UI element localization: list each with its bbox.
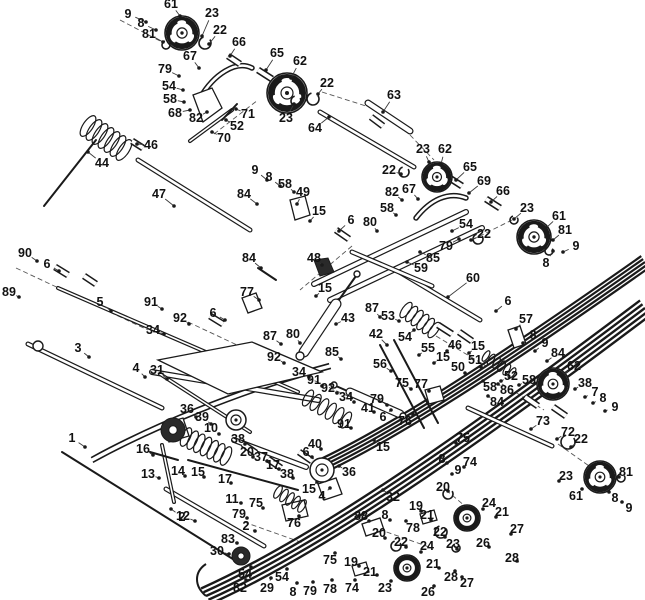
part-label-6: 6 bbox=[505, 294, 512, 308]
part-label-23: 23 bbox=[520, 201, 534, 215]
part-label-69: 69 bbox=[477, 174, 491, 188]
part-label-92: 92 bbox=[267, 350, 281, 364]
leader-dot bbox=[439, 162, 443, 166]
leader-dot bbox=[228, 54, 232, 58]
leader-dot bbox=[210, 130, 214, 134]
leader-dot bbox=[295, 202, 299, 206]
leader-dot bbox=[334, 322, 338, 326]
part-label-91: 91 bbox=[337, 417, 351, 431]
leader-dot bbox=[327, 115, 331, 119]
part-label-57: 57 bbox=[519, 312, 533, 326]
part-label-72: 72 bbox=[561, 425, 575, 439]
leader-dot bbox=[375, 229, 379, 233]
part-label-81: 81 bbox=[558, 223, 572, 237]
part-label-15: 15 bbox=[191, 465, 205, 479]
part-label-43: 43 bbox=[341, 311, 355, 325]
part-label-6: 6 bbox=[348, 213, 355, 227]
leader-dot bbox=[224, 118, 228, 122]
leader-dot bbox=[545, 359, 549, 363]
leader-dot bbox=[573, 387, 577, 391]
leader-dot bbox=[551, 238, 555, 242]
part-label-8: 8 bbox=[290, 585, 297, 599]
part-label-26: 26 bbox=[421, 585, 435, 599]
leader-dot bbox=[57, 269, 61, 273]
part-label-9: 9 bbox=[125, 7, 132, 21]
leader-dot bbox=[83, 445, 87, 449]
leader-dot bbox=[292, 102, 296, 106]
part-label-8: 8 bbox=[612, 491, 619, 505]
part-label-19: 19 bbox=[344, 555, 358, 569]
leader-dot bbox=[169, 507, 173, 511]
part-label-23: 23 bbox=[416, 142, 430, 156]
part-label-1: 1 bbox=[69, 431, 76, 445]
part-label-44: 44 bbox=[95, 156, 109, 170]
leader-dot bbox=[416, 197, 420, 201]
leader-dot bbox=[555, 437, 559, 441]
part-label-5: 5 bbox=[97, 295, 104, 309]
part-label-29: 29 bbox=[260, 581, 274, 595]
part-label-22: 22 bbox=[574, 432, 588, 446]
part-label-22: 22 bbox=[320, 76, 334, 90]
part-label-75: 75 bbox=[395, 376, 409, 390]
leader-dot bbox=[544, 226, 548, 230]
part-label-9: 9 bbox=[542, 336, 549, 350]
leader-dot bbox=[160, 307, 164, 311]
leader-dot bbox=[182, 100, 186, 104]
part-label-23: 23 bbox=[446, 537, 460, 551]
wheel-axle bbox=[598, 475, 601, 478]
leader-dot bbox=[389, 408, 393, 412]
part-label-84: 84 bbox=[237, 187, 251, 201]
part-label-92: 92 bbox=[173, 311, 187, 325]
eyelet bbox=[33, 341, 43, 351]
leader-dot bbox=[394, 213, 398, 217]
leader-dot bbox=[389, 369, 393, 373]
leader-dot bbox=[310, 455, 314, 459]
wheel-axle bbox=[320, 468, 323, 471]
leader-dot bbox=[388, 518, 392, 522]
leader-dot bbox=[279, 342, 283, 346]
leader-dot bbox=[397, 319, 401, 323]
part-label-53: 53 bbox=[381, 309, 395, 323]
part-label-77: 77 bbox=[414, 377, 428, 391]
leader-dot bbox=[178, 14, 182, 18]
leader-dot bbox=[282, 361, 286, 365]
leader-dot bbox=[109, 309, 113, 313]
part-label-8: 8 bbox=[439, 452, 446, 466]
wheel-axle bbox=[532, 235, 535, 238]
part-label-22: 22 bbox=[213, 23, 227, 37]
leader-dot bbox=[512, 217, 516, 221]
leader-dot bbox=[607, 490, 611, 494]
leader-dot bbox=[603, 409, 607, 413]
leader-dot bbox=[551, 249, 555, 253]
leader-dot bbox=[289, 76, 293, 80]
part-label-13: 13 bbox=[141, 467, 155, 481]
leader-dot bbox=[517, 383, 521, 387]
part-label-21: 21 bbox=[495, 505, 509, 519]
part-label-79: 79 bbox=[439, 239, 453, 253]
wheel-axle bbox=[180, 31, 183, 34]
wheel-axle bbox=[551, 382, 554, 385]
leader-dot bbox=[165, 377, 169, 381]
part-label-8: 8 bbox=[600, 391, 607, 405]
leader-dot bbox=[583, 395, 587, 399]
part-label-27: 27 bbox=[510, 522, 524, 536]
part-label-32: 32 bbox=[386, 490, 400, 504]
leader-dot bbox=[339, 357, 343, 361]
leader-dot bbox=[529, 427, 533, 431]
part-label-9: 9 bbox=[252, 163, 259, 177]
leader-dot bbox=[337, 229, 341, 233]
part-label-54: 54 bbox=[275, 570, 289, 584]
part-label-80: 80 bbox=[363, 215, 377, 229]
part-label-2: 2 bbox=[243, 519, 250, 533]
part-label-15: 15 bbox=[318, 281, 332, 295]
part-label-16: 16 bbox=[136, 442, 150, 456]
leader-dot bbox=[445, 461, 449, 465]
part-label-9: 9 bbox=[612, 400, 619, 414]
part-label-84: 84 bbox=[242, 251, 256, 265]
leader-dot bbox=[257, 298, 261, 302]
part-label-26: 26 bbox=[476, 536, 490, 550]
leader-dot bbox=[207, 42, 211, 46]
part-label-46: 46 bbox=[448, 338, 462, 352]
leader-dot bbox=[400, 198, 404, 202]
part-label-38: 38 bbox=[280, 467, 294, 481]
part-label-24: 24 bbox=[420, 539, 434, 553]
leader-dot bbox=[494, 309, 498, 313]
leader-dot bbox=[591, 401, 595, 405]
part-label-81: 81 bbox=[142, 27, 156, 41]
eyelet bbox=[296, 352, 304, 360]
leader-dot bbox=[399, 172, 403, 176]
leader-dot bbox=[35, 259, 39, 263]
part-label-28: 28 bbox=[505, 551, 519, 565]
leader-dot bbox=[381, 110, 385, 114]
part-label-92: 92 bbox=[321, 381, 335, 395]
part-label-4: 4 bbox=[319, 489, 326, 503]
leader-dot bbox=[418, 250, 422, 254]
leader-dot bbox=[177, 74, 181, 78]
part-label-20: 20 bbox=[436, 480, 450, 494]
leader-dot bbox=[172, 204, 176, 208]
part-label-36: 36 bbox=[180, 402, 194, 416]
part-label-66: 66 bbox=[232, 35, 246, 49]
part-label-54: 54 bbox=[238, 567, 252, 581]
leader-dot bbox=[337, 464, 341, 468]
part-label-3: 3 bbox=[75, 341, 82, 355]
leader-dot bbox=[569, 445, 573, 449]
part-label-78: 78 bbox=[323, 582, 337, 596]
part-label-79: 79 bbox=[303, 584, 317, 598]
leader-dot bbox=[457, 237, 461, 241]
part-label-65: 65 bbox=[463, 160, 477, 174]
wheel-axle bbox=[435, 175, 438, 178]
part-label-60: 60 bbox=[466, 271, 480, 285]
part-label-73: 73 bbox=[536, 414, 550, 428]
leader-dot bbox=[446, 295, 450, 299]
part-label-59: 59 bbox=[414, 261, 428, 275]
part-label-38: 38 bbox=[231, 432, 245, 446]
leader-dot bbox=[205, 110, 209, 114]
wheel-axle bbox=[405, 566, 408, 569]
part-label-50: 50 bbox=[451, 360, 465, 374]
part-label-15: 15 bbox=[376, 440, 390, 454]
leader-dot bbox=[200, 34, 204, 38]
leader-dot bbox=[135, 142, 139, 146]
part-label-58: 58 bbox=[278, 177, 292, 191]
leader-dot bbox=[259, 266, 263, 270]
part-label-75: 75 bbox=[456, 431, 470, 445]
part-label-82: 82 bbox=[385, 185, 399, 199]
part-label-54: 54 bbox=[459, 217, 473, 231]
leader-dot bbox=[143, 375, 147, 379]
part-label-54: 54 bbox=[398, 330, 412, 344]
leader-dot bbox=[227, 552, 231, 556]
parts-diagram-svg: 9618812322666765627954586882715270234644… bbox=[0, 0, 645, 600]
part-label-21: 21 bbox=[426, 557, 440, 571]
part-label-91: 91 bbox=[144, 295, 158, 309]
leader-dot bbox=[193, 519, 197, 523]
part-label-75: 75 bbox=[249, 496, 263, 510]
part-label-84: 84 bbox=[551, 346, 565, 360]
part-label-20: 20 bbox=[372, 526, 386, 540]
leader-dot bbox=[409, 387, 413, 391]
part-label-21: 21 bbox=[363, 565, 377, 579]
part-label-65: 65 bbox=[270, 46, 284, 60]
part-label-6: 6 bbox=[210, 306, 217, 320]
eyelet bbox=[354, 271, 360, 277]
part-label-61: 61 bbox=[164, 0, 178, 11]
part-label-34: 34 bbox=[292, 365, 306, 379]
part-label-49: 49 bbox=[296, 185, 310, 199]
part-label-67: 67 bbox=[402, 182, 416, 196]
leader-dot bbox=[427, 160, 431, 164]
leader-dot bbox=[385, 343, 389, 347]
part-label-4: 4 bbox=[133, 361, 140, 375]
part-label-62: 62 bbox=[438, 142, 452, 156]
part-label-17: 17 bbox=[266, 458, 280, 472]
part-label-14: 14 bbox=[171, 464, 185, 478]
part-label-81: 81 bbox=[619, 465, 633, 479]
leader-dot bbox=[235, 541, 239, 545]
leader-dot bbox=[561, 373, 565, 377]
parts-diagram-page: 9618812322666765627954586882715270234644… bbox=[0, 0, 645, 600]
part-label-84: 84 bbox=[490, 395, 504, 409]
part-label-40: 40 bbox=[308, 437, 322, 451]
part-label-76: 76 bbox=[398, 414, 412, 428]
part-label-61: 61 bbox=[552, 209, 566, 223]
leader-dot bbox=[469, 238, 473, 242]
leader-dot bbox=[385, 403, 389, 407]
part-label-55: 55 bbox=[421, 341, 435, 355]
leader-dot bbox=[514, 327, 518, 331]
leader-dot bbox=[381, 488, 385, 492]
wheel-axle bbox=[285, 91, 289, 95]
part-label-8: 8 bbox=[543, 256, 550, 270]
leader-dot bbox=[87, 355, 91, 359]
leader-dot bbox=[151, 453, 155, 457]
part-label-88: 88 bbox=[354, 509, 368, 523]
leader-dot bbox=[467, 191, 471, 195]
part-label-51: 51 bbox=[468, 353, 482, 367]
part-label-17: 17 bbox=[218, 472, 232, 486]
part-label-82: 82 bbox=[233, 581, 247, 595]
part-label-20: 20 bbox=[240, 445, 254, 459]
part-label-2: 2 bbox=[179, 510, 186, 524]
part-label-22: 22 bbox=[433, 525, 447, 539]
part-label-79: 79 bbox=[158, 62, 172, 76]
wheel-axle bbox=[465, 516, 468, 519]
part-label-23: 23 bbox=[205, 6, 219, 20]
leader-dot bbox=[144, 20, 148, 24]
part-label-80: 80 bbox=[286, 327, 300, 341]
part-label-8: 8 bbox=[382, 508, 389, 522]
part-label-36: 36 bbox=[342, 465, 356, 479]
part-label-9: 9 bbox=[626, 501, 633, 515]
part-label-6: 6 bbox=[44, 257, 51, 271]
part-label-8: 8 bbox=[530, 328, 537, 342]
leader-dot bbox=[269, 576, 273, 580]
part-label-15: 15 bbox=[471, 339, 485, 353]
part-label-89: 89 bbox=[2, 285, 16, 299]
leader-dot bbox=[157, 476, 161, 480]
part-label-22: 22 bbox=[477, 227, 491, 241]
part-label-68: 68 bbox=[168, 106, 182, 120]
part-label-24: 24 bbox=[482, 496, 496, 510]
leader-dot bbox=[489, 200, 493, 204]
part-label-9: 9 bbox=[573, 239, 580, 253]
part-label-42: 42 bbox=[369, 327, 383, 341]
part-label-34: 34 bbox=[339, 390, 353, 404]
part-label-38: 38 bbox=[578, 376, 592, 390]
leader-dot bbox=[197, 66, 201, 70]
part-label-67: 67 bbox=[183, 49, 197, 63]
part-label-27: 27 bbox=[460, 576, 474, 590]
leader-dot bbox=[308, 219, 312, 223]
part-label-79: 79 bbox=[370, 392, 384, 406]
part-label-58: 58 bbox=[380, 201, 394, 215]
part-label-87: 87 bbox=[365, 301, 379, 315]
part-label-11: 11 bbox=[225, 492, 238, 506]
part-label-22: 22 bbox=[394, 535, 408, 549]
part-label-10: 10 bbox=[204, 421, 218, 435]
leader-dot bbox=[620, 500, 624, 504]
part-label-76: 76 bbox=[287, 516, 301, 530]
part-label-23: 23 bbox=[559, 469, 573, 483]
part-label-58: 58 bbox=[522, 373, 536, 387]
leader-dot bbox=[521, 341, 525, 345]
leader-dot bbox=[17, 295, 21, 299]
leader-dot bbox=[328, 486, 332, 490]
leader-dot bbox=[450, 229, 454, 233]
leader-dot bbox=[533, 349, 537, 353]
part-label-70: 70 bbox=[217, 131, 231, 145]
roller-hub bbox=[238, 553, 244, 559]
part-label-23: 23 bbox=[279, 111, 293, 125]
leader-dot bbox=[86, 150, 90, 154]
part-label-64: 64 bbox=[308, 121, 322, 135]
part-label-85: 85 bbox=[325, 345, 339, 359]
part-label-63: 63 bbox=[387, 88, 401, 102]
leader-dot bbox=[412, 328, 416, 332]
part-label-30: 30 bbox=[210, 544, 224, 558]
part-label-62: 62 bbox=[293, 54, 307, 68]
part-label-9: 9 bbox=[455, 463, 462, 477]
part-label-87: 87 bbox=[263, 329, 277, 343]
part-label-77: 77 bbox=[240, 285, 254, 299]
part-label-54: 54 bbox=[162, 79, 176, 93]
part-label-75: 75 bbox=[323, 553, 337, 567]
part-label-85: 85 bbox=[426, 251, 440, 265]
leader-dot bbox=[454, 178, 458, 182]
leader-dot bbox=[239, 501, 243, 505]
leader-dot bbox=[162, 332, 166, 336]
part-label-66: 66 bbox=[496, 184, 510, 198]
part-label-23: 23 bbox=[378, 581, 392, 595]
leader-dot bbox=[316, 92, 320, 96]
part-label-15: 15 bbox=[302, 482, 316, 496]
part-label-82: 82 bbox=[189, 111, 203, 125]
part-label-58: 58 bbox=[483, 380, 497, 394]
leader-dot bbox=[405, 260, 409, 264]
part-label-15: 15 bbox=[436, 350, 450, 364]
part-label-47: 47 bbox=[152, 187, 166, 201]
part-label-62: 62 bbox=[567, 359, 581, 373]
part-label-22: 22 bbox=[382, 163, 396, 177]
leader-dot bbox=[255, 202, 259, 206]
part-label-46: 46 bbox=[144, 138, 158, 152]
leader-dot bbox=[264, 68, 268, 72]
part-label-8: 8 bbox=[266, 170, 273, 184]
roller-hub bbox=[169, 426, 177, 434]
part-label-52: 52 bbox=[504, 369, 518, 383]
part-label-34: 34 bbox=[146, 323, 160, 337]
part-label-58: 58 bbox=[163, 92, 177, 106]
leader-dot bbox=[187, 322, 191, 326]
leader-dot bbox=[161, 40, 165, 44]
part-label-7: 7 bbox=[592, 385, 599, 399]
leader-dot bbox=[223, 318, 227, 322]
part-label-74: 74 bbox=[463, 455, 477, 469]
part-label-15: 15 bbox=[312, 204, 326, 218]
leader-dot bbox=[253, 529, 257, 533]
leader-dot bbox=[234, 107, 238, 111]
wheel-axle bbox=[234, 418, 237, 421]
part-label-91: 91 bbox=[307, 373, 321, 387]
part-label-21: 21 bbox=[420, 508, 434, 522]
leader-dot bbox=[561, 250, 565, 254]
part-label-74: 74 bbox=[345, 581, 359, 595]
part-label-6: 6 bbox=[380, 410, 387, 424]
part-label-56: 56 bbox=[373, 357, 387, 371]
leader-dot bbox=[450, 472, 454, 476]
part-label-31: 31 bbox=[150, 363, 164, 377]
part-label-61: 61 bbox=[569, 489, 583, 503]
part-label-90: 90 bbox=[18, 246, 32, 260]
leader-dot bbox=[181, 88, 185, 92]
leader-dot bbox=[298, 341, 302, 345]
part-label-52: 52 bbox=[230, 119, 244, 133]
part-label-78: 78 bbox=[406, 521, 420, 535]
part-label-28: 28 bbox=[444, 570, 458, 584]
part-label-48: 48 bbox=[307, 251, 321, 265]
